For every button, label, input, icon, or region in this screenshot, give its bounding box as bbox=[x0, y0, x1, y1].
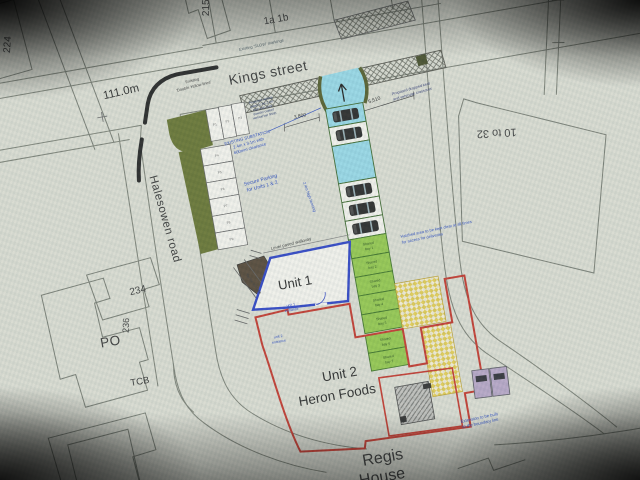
yellow-hatch-area-1 bbox=[395, 276, 446, 329]
site-plan-photo: Kings street Halesowen road Unit 1 Unit … bbox=[0, 0, 640, 480]
paper-background bbox=[0, 0, 640, 480]
number-215: 215 bbox=[201, 0, 212, 16]
number-10-to-32: 10 to 32 bbox=[477, 126, 517, 140]
number-236: 236 bbox=[121, 318, 132, 333]
number-224: 224 bbox=[2, 35, 14, 53]
site-plan-drawing: Kings street Halesowen road Unit 1 Unit … bbox=[0, 0, 640, 480]
dock-door-2 bbox=[400, 416, 407, 423]
